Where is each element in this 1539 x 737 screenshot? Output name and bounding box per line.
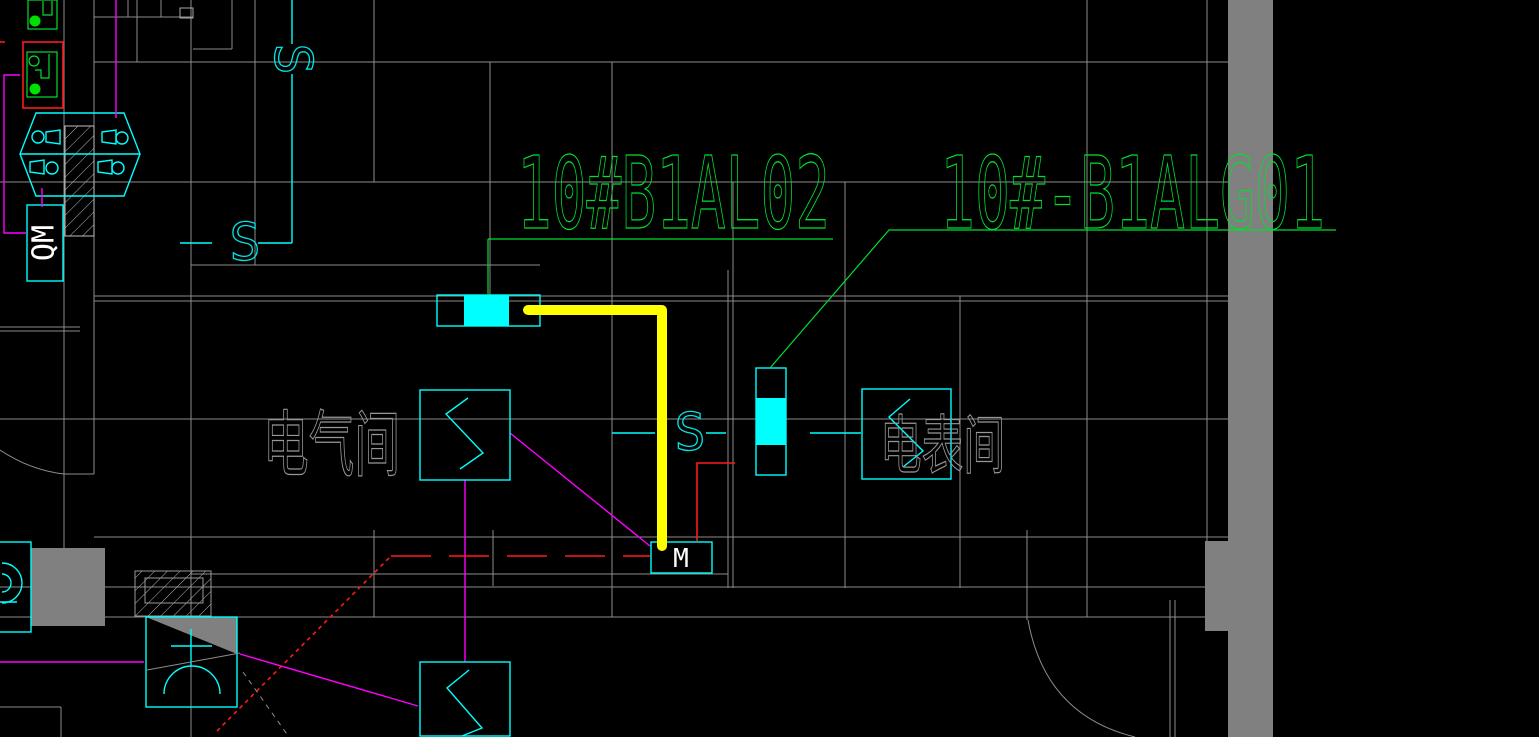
green-device-top[interactable]	[28, 0, 57, 29]
switch-letter-right: S	[674, 403, 705, 463]
switch-wiring-right[interactable]: S	[612, 403, 861, 463]
leader-b1al02[interactable]: 10#B1AL02	[488, 135, 833, 295]
switch-box-bottom[interactable]	[420, 662, 510, 736]
room-label-meter: 电表间	[880, 410, 1005, 484]
circuit-label-b1al02[interactable]: 10#B1AL02	[517, 135, 830, 252]
green-device-bottom[interactable]	[27, 52, 57, 97]
door-bottom-right	[1027, 530, 1175, 737]
qm-label: QM	[27, 225, 62, 261]
cad-viewport[interactable]: QM S S 10#B1AL02	[0, 0, 1539, 737]
panel-b1alg01[interactable]	[756, 368, 786, 475]
room-label-electrical: 电气间	[263, 403, 400, 487]
hatched-wall-bottom-left	[135, 571, 211, 616]
floorplan-drawing: QM S S 10#B1AL02	[0, 0, 1539, 737]
yellow-highlight-wire[interactable]	[528, 310, 662, 546]
switch-letter-top: S	[262, 43, 322, 74]
switch-box-electrical-room[interactable]	[420, 390, 510, 480]
switch-wiring-top[interactable]: S S	[180, 0, 322, 273]
switch-letter-mid: S	[229, 213, 260, 273]
meter-label: M	[673, 544, 689, 574]
circuit-label-b1alg01[interactable]: 10#-B1ALG01	[940, 135, 1325, 252]
hatched-wall-top-left	[65, 126, 94, 236]
qm-isolator[interactable]: QM	[27, 205, 64, 281]
